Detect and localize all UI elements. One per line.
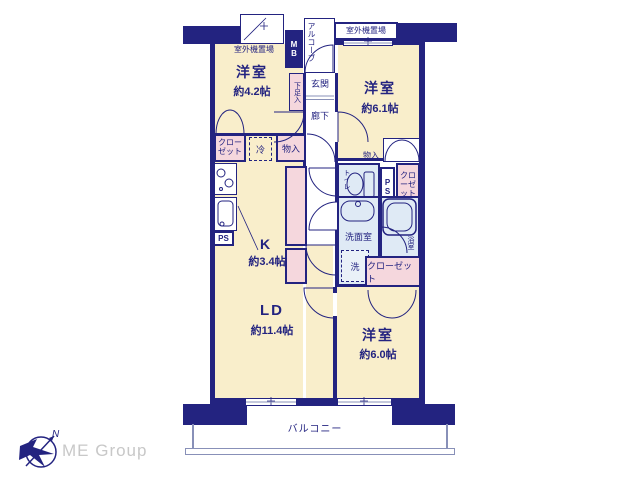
window-mark-top-left — [244, 18, 268, 40]
window-mark-west60 — [360, 397, 368, 405]
company-logo-text: ME Group — [62, 441, 147, 461]
door-arc-entrance — [305, 45, 333, 73]
compass-north-label: N — [52, 429, 60, 440]
compass-icon: N — [16, 426, 68, 476]
closet-doors-west60 — [368, 290, 416, 318]
door-arc-toilet — [309, 168, 337, 196]
closet-doors-west61 — [385, 140, 419, 161]
toilet-icon — [347, 172, 374, 197]
door-arc-west42 — [274, 112, 304, 142]
washbasin-icon — [341, 201, 374, 221]
door-arc-washroom — [309, 202, 337, 230]
floorplan-canvas: 室外機置場 室外機置場 MB アルコーブ 下足入 玄関 廊下 洋室 約4.2帖 … — [0, 0, 640, 480]
kitchen-sink-icon — [218, 201, 233, 226]
window-mark-top-west61 — [364, 37, 372, 45]
stove-icon — [217, 169, 233, 191]
kitchen-leader-line — [238, 206, 258, 250]
door-arc-west61 — [338, 112, 368, 142]
door-arc-hall-ld — [306, 245, 336, 275]
door-arc-ld-west60 — [304, 288, 334, 318]
bathtub-icon — [383, 199, 416, 235]
entrance-step-lines — [306, 96, 334, 100]
window-mark-ld — [267, 397, 275, 405]
plan-linework-layer — [0, 0, 640, 480]
closet-doors-west42 — [216, 110, 244, 134]
door-arc-storage-kitchen — [307, 134, 335, 162]
